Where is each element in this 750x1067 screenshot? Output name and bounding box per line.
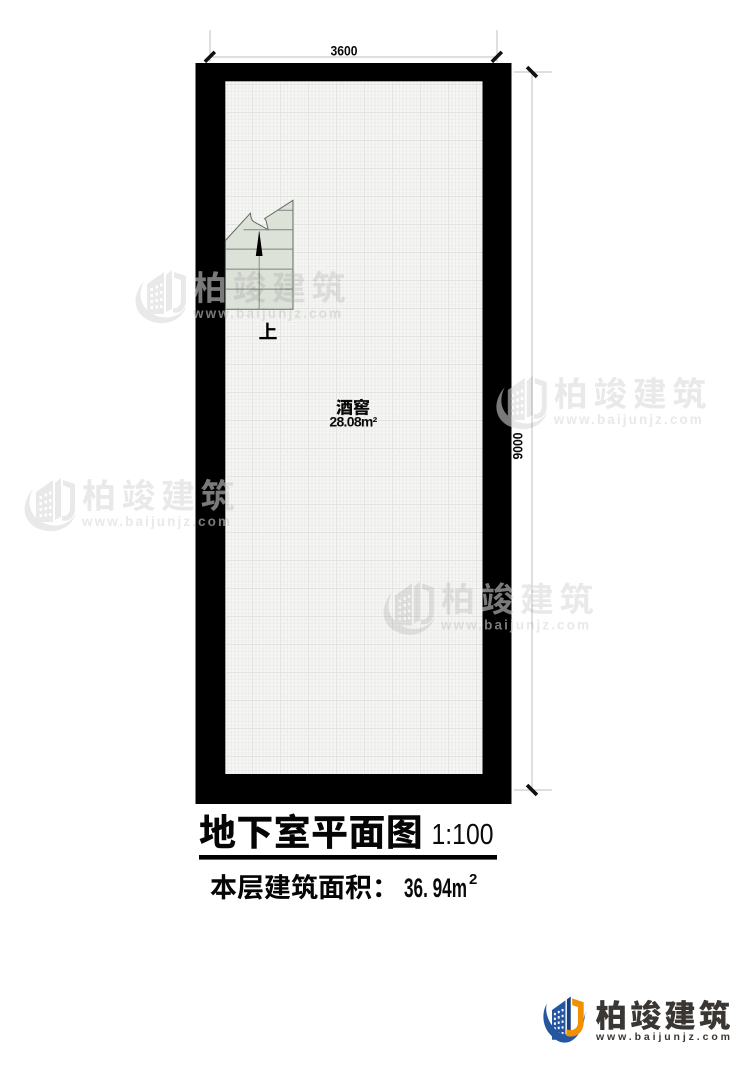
svg-text:1:100: 1:100 <box>432 819 494 851</box>
svg-text:28.08m²: 28.08m² <box>329 414 377 430</box>
svg-text:9000: 9000 <box>511 433 526 460</box>
svg-text:36. 94m: 36. 94m <box>404 873 467 903</box>
svg-text:3600: 3600 <box>331 44 358 59</box>
svg-text:2: 2 <box>469 871 477 888</box>
